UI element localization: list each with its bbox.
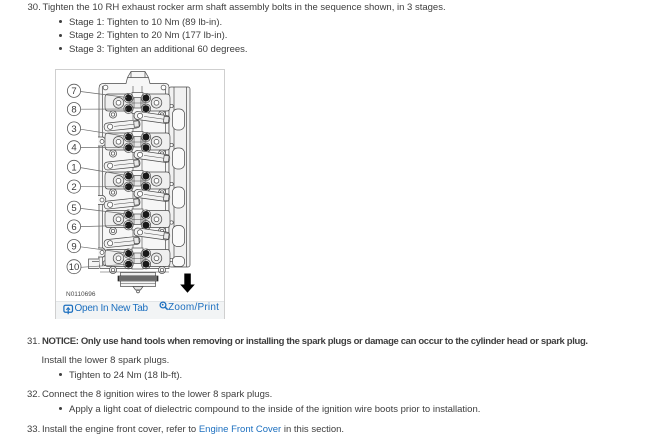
svg-text:3: 3 bbox=[71, 123, 76, 134]
svg-text:10: 10 bbox=[69, 262, 80, 273]
svg-text:9: 9 bbox=[71, 241, 76, 252]
svg-text:1: 1 bbox=[71, 162, 76, 173]
svg-text:6: 6 bbox=[71, 221, 76, 232]
svg-text:8: 8 bbox=[71, 104, 76, 115]
svg-text:7: 7 bbox=[71, 86, 76, 97]
svg-text:5: 5 bbox=[71, 203, 76, 214]
svg-text:4: 4 bbox=[71, 142, 76, 153]
svg-text:2: 2 bbox=[71, 182, 76, 193]
